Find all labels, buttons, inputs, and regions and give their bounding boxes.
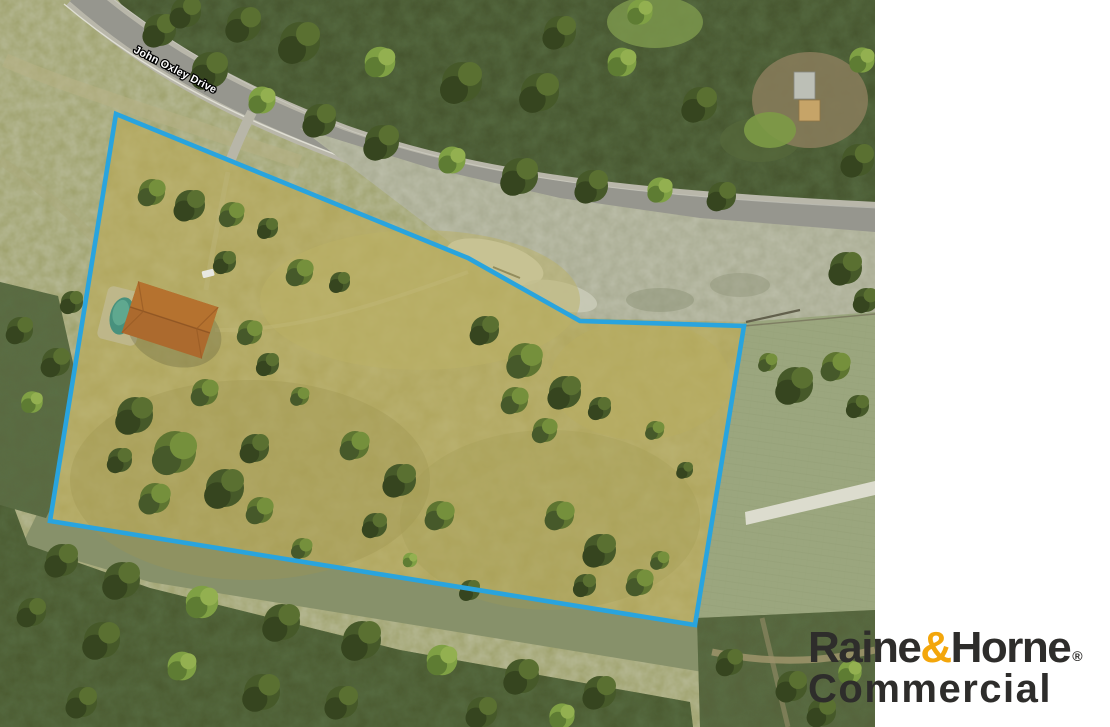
logo-raine: Raine [808,631,920,665]
shed-pallets [799,100,820,121]
agency-logo: Raine&Horne® Commercial [808,631,1083,705]
listing-aerial-image: John Oxley Drive Raine&Horne® Commercial [0,0,1110,727]
shed-roof [794,72,815,99]
logo-commercial: Commercial [808,674,1083,705]
logo-horne: Horne [951,631,1071,665]
logo-ampersand: & [920,631,950,665]
registered-trademark-icon: ® [1072,639,1082,673]
satellite-photo: John Oxley Drive [0,0,875,727]
white-margin-panel [875,0,1110,727]
